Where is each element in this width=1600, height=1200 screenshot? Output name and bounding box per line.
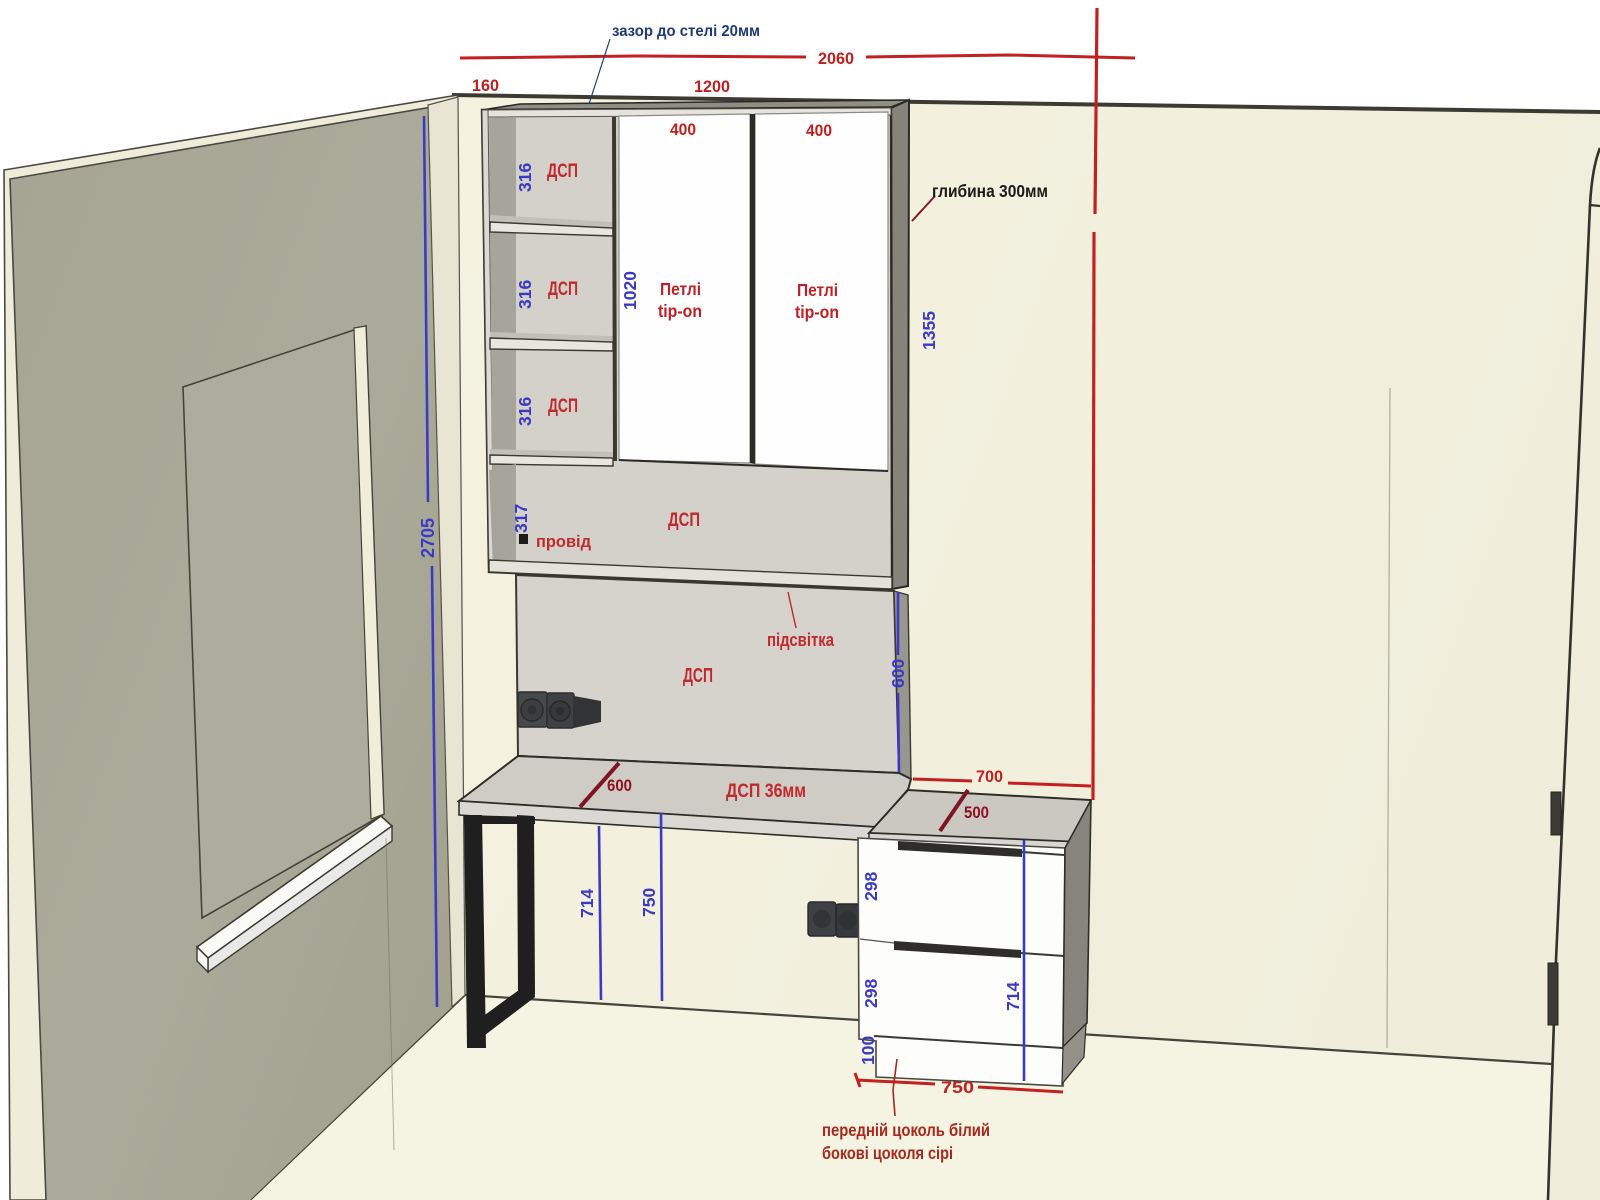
svg-text:ДСП: ДСП [548, 279, 578, 300]
svg-text:750: 750 [639, 888, 659, 917]
svg-text:ДСП: ДСП [547, 161, 578, 182]
svg-text:1020: 1020 [620, 271, 640, 310]
svg-text:підсвітка: підсвітка [767, 630, 835, 650]
svg-text:316: 316 [515, 280, 535, 309]
svg-text:160: 160 [472, 76, 499, 95]
svg-text:1355: 1355 [919, 311, 939, 350]
svg-text:передній цоколь білий: передній цоколь білий [822, 1120, 990, 1140]
svg-text:2060: 2060 [818, 49, 854, 68]
svg-text:100: 100 [858, 1036, 878, 1065]
svg-text:500: 500 [964, 803, 989, 822]
svg-text:400: 400 [806, 121, 832, 140]
svg-text:600: 600 [888, 659, 908, 688]
svg-text:600: 600 [607, 776, 632, 795]
svg-text:2705: 2705 [418, 518, 438, 558]
svg-text:400: 400 [670, 120, 696, 139]
svg-text:714: 714 [1003, 982, 1023, 1011]
svg-text:Петлі: Петлі [660, 279, 701, 299]
svg-text:298: 298 [861, 979, 881, 1008]
svg-text:317: 317 [511, 504, 531, 533]
svg-text:316: 316 [515, 397, 535, 426]
svg-text:tip-on: tip-on [658, 301, 702, 321]
svg-text:зазор до стелі 20мм: зазор до стелі 20мм [612, 23, 760, 40]
svg-text:бокові цоколя сірі: бокові цоколя сірі [822, 1143, 953, 1163]
svg-text:провід: провід [536, 532, 591, 551]
svg-text:750: 750 [941, 1078, 974, 1097]
svg-text:316: 316 [515, 163, 535, 192]
svg-text:700: 700 [976, 767, 1003, 786]
svg-text:1200: 1200 [694, 77, 730, 96]
svg-text:ДСП: ДСП [683, 665, 713, 687]
svg-text:ДСП: ДСП [668, 510, 700, 531]
svg-text:tip-on: tip-on [795, 302, 839, 322]
svg-text:ДСП 36мм: ДСП 36мм [726, 781, 806, 802]
svg-text:714: 714 [577, 889, 597, 918]
svg-text:Петлі: Петлі [797, 280, 838, 300]
svg-text:глибина 300мм: глибина 300мм [932, 181, 1048, 201]
svg-text:ДСП: ДСП [548, 396, 578, 417]
svg-text:298: 298 [861, 872, 881, 901]
